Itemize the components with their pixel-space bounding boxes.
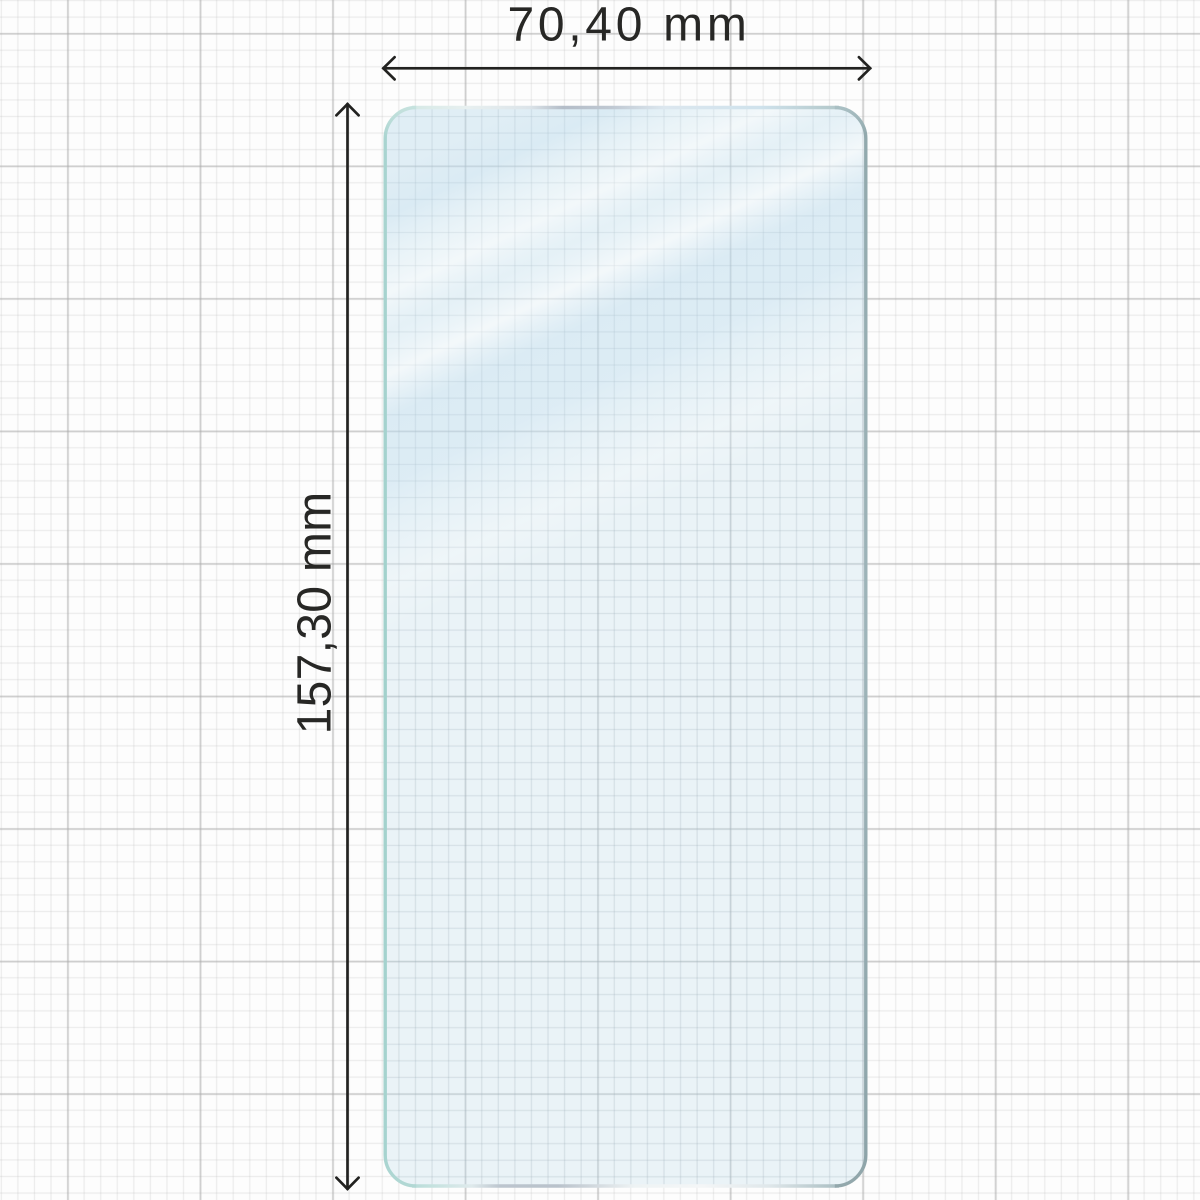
svg-text:70,40 mm: 70,40 mm	[507, 0, 750, 52]
svg-text:157,30 mm: 157,30 mm	[289, 492, 342, 735]
